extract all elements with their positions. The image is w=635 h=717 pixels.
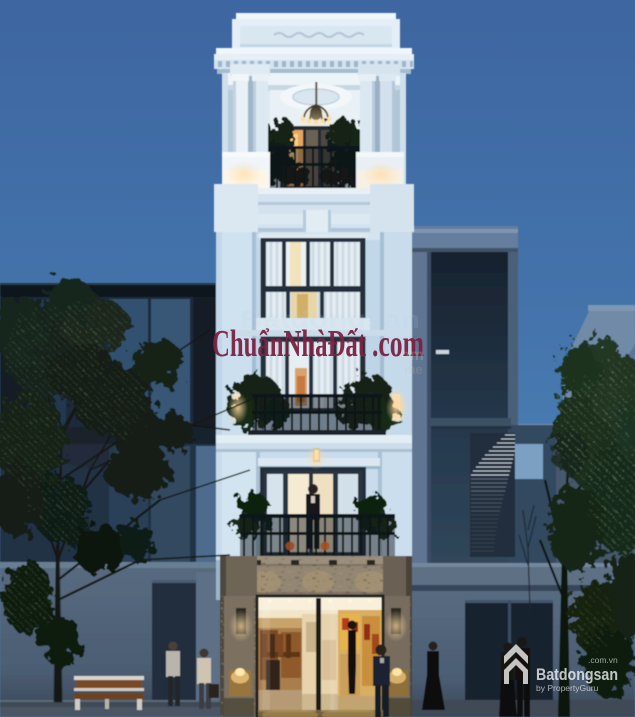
svg-text:Batdongsan: Batdongsan [536,665,618,684]
svg-text:ChuẩnNhàĐất: ChuẩnNhàĐất [212,323,366,365]
svg-text:.com.vn: .com.vn [588,655,618,665]
svg-text:me: me [404,362,423,377]
svg-text:by PropertyGuru: by PropertyGuru [536,683,599,693]
